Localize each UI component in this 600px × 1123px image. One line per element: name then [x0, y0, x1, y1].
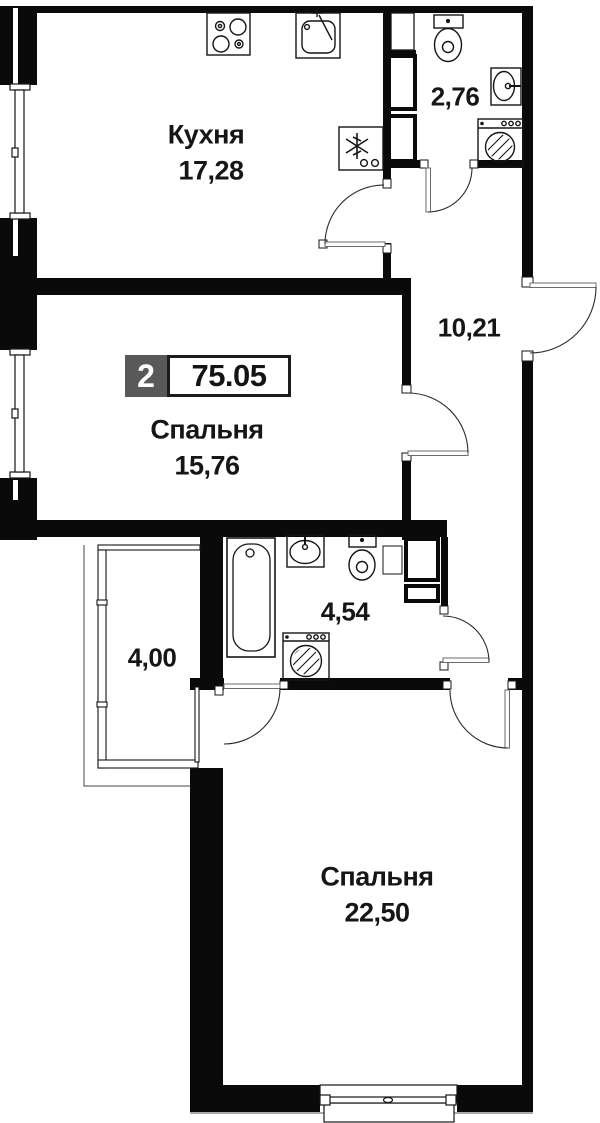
vent-shaft-bathroom: [383, 537, 440, 603]
kitchen-sink-icon: [296, 9, 340, 58]
entrance-door-leaf: [530, 283, 596, 288]
floor-plan: Кухня 17,28 2,76 10,21 Спальня 15,76 4,5…: [0, 0, 600, 1123]
kitchen-door-arc: [325, 185, 384, 244]
room-label-bedroom2: Спальня: [320, 862, 433, 893]
rooms-count-badge: 2: [125, 355, 167, 397]
room-area-bedroom2: 22,50: [344, 898, 409, 929]
vent-shaft-top: [387, 13, 417, 167]
room-area-bathroom-main: 4,54: [321, 597, 370, 628]
wc-top-door-arc: [428, 168, 472, 212]
room-area-bathroom-top: 2,76: [431, 82, 480, 113]
entrance-door-arc: [530, 287, 596, 353]
bedroom1-window: [10, 349, 30, 478]
room-area-kitchen: 17,28: [178, 156, 243, 187]
room-area-balcony: 4,00: [128, 643, 177, 674]
room-label-bedroom1: Спальня: [150, 415, 263, 446]
floor-plan-drawing: [0, 0, 600, 1123]
washbasin-top-icon: [491, 68, 521, 105]
toilet-main-icon: [349, 535, 376, 580]
balcony-door-arc: [224, 688, 280, 744]
bathroom-door-leaf: [443, 658, 489, 663]
total-area-badge: 75.05: [167, 355, 291, 397]
stove-icon: [207, 13, 250, 55]
kitchen-window: [10, 84, 30, 219]
room-label-kitchen: Кухня: [168, 120, 244, 151]
bedroom2-door-leaf: [505, 690, 510, 748]
wc-top-door-leaf: [426, 168, 431, 212]
walls: [0, 6, 533, 1112]
balcony-door-leaf: [224, 684, 280, 689]
room-area-bedroom1: 15,76: [174, 451, 239, 482]
washing-machine-main-icon: [283, 629, 329, 685]
bathroom-door-arc: [443, 616, 489, 662]
bedroom1-door-arc: [408, 393, 468, 453]
bedroom1-door-leaf: [408, 451, 468, 456]
bedroom2-window: [320, 1085, 457, 1122]
room-area-hallway: 10,21: [438, 313, 501, 344]
fridge-icon: [339, 127, 383, 170]
washbasin-main-icon: [287, 535, 324, 567]
bathtub-icon: [227, 538, 275, 657]
toilet-top-icon: [434, 15, 463, 62]
kitchen-door-leaf: [325, 242, 385, 247]
apartment-badge: 2 75.05: [125, 355, 291, 397]
bedroom2-door-arc: [450, 690, 508, 748]
